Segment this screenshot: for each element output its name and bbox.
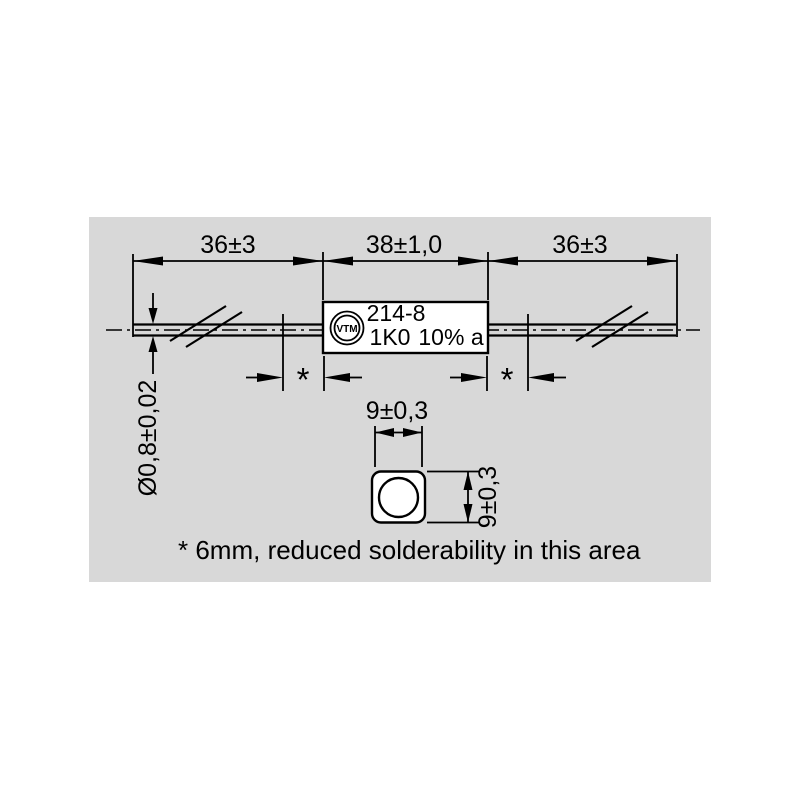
resistor-body: VTM 214-8 1K0 10% a	[323, 300, 488, 353]
diagram-canvas: 36±3 38±1,0 36±3 Ø0,8±0,02 VTM 214-8 1K0…	[0, 0, 800, 800]
resistor-tolerance: 10% a	[418, 324, 483, 350]
solderability-footnote: * 6mm, reduced solderability in this are…	[178, 535, 641, 565]
dim-label-section-width: 9±0,3	[366, 397, 428, 425]
dim-label-wire-diameter: Ø0,8±0,02	[134, 380, 162, 497]
dim-label-section-height: 9±0,3	[474, 466, 502, 528]
brand-logo-monogram: VTM	[336, 324, 357, 335]
solder-zone-marker-right: *	[501, 361, 514, 398]
dim-label-lead-left: 36±3	[200, 231, 255, 259]
resistor-type-code: 214-8	[367, 300, 426, 326]
dim-label-lead-right: 36±3	[552, 231, 607, 259]
dim-label-body-length: 38±1,0	[366, 231, 442, 259]
section-wire-circle	[379, 478, 418, 517]
resistor-value: 1K0	[370, 324, 411, 350]
resistor-dimension-drawing: 36±3 38±1,0 36±3 Ø0,8±0,02 VTM 214-8 1K0…	[0, 0, 800, 800]
solder-zone-marker-left: *	[297, 361, 310, 398]
